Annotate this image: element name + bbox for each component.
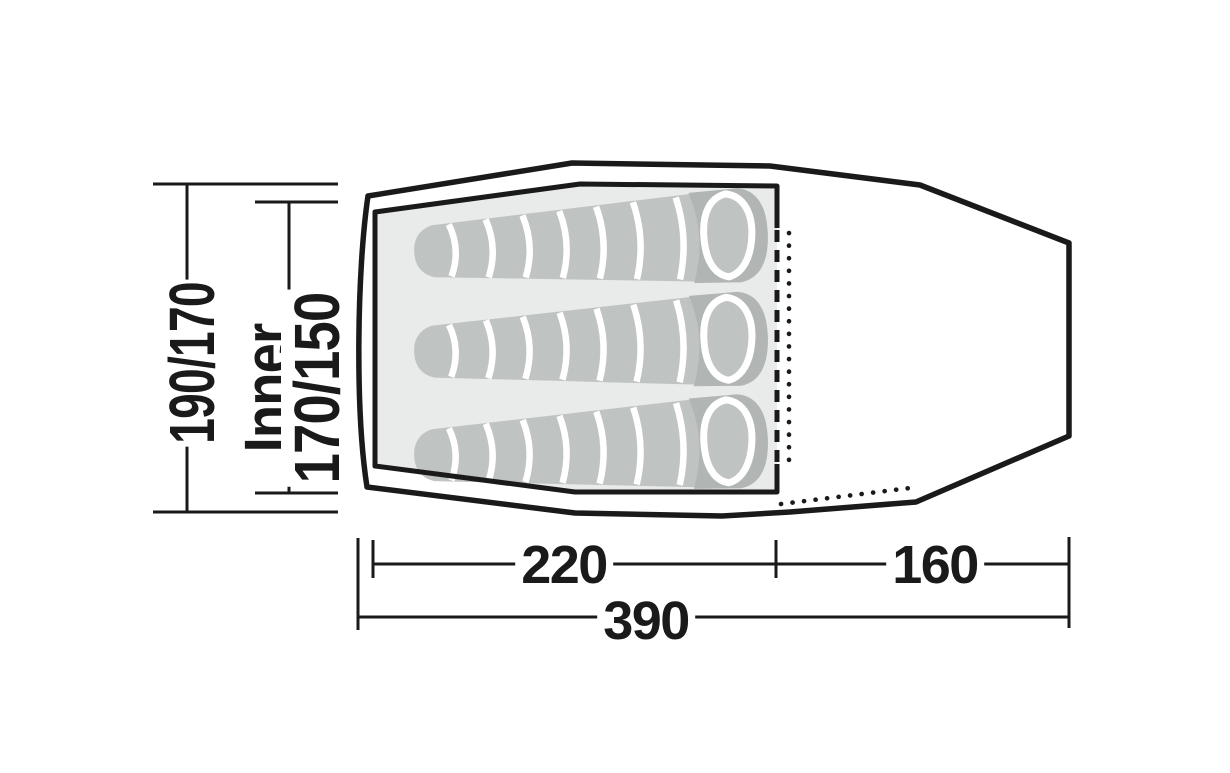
porch-length-label: 160 <box>886 534 984 596</box>
total-length-label: 390 <box>597 590 695 652</box>
inner-height-value: 170/150 <box>281 289 353 486</box>
outer-height-label: 190/170 <box>155 279 229 446</box>
inner-height-label: Inner 170/150 <box>242 289 342 486</box>
inner-length-value: 220 <box>515 535 613 595</box>
tent-dimension-diagram: 190/170 Inner 170/150 220 160 390 <box>0 0 1230 773</box>
porch-length-value: 160 <box>886 535 984 595</box>
total-length-value: 390 <box>597 591 695 651</box>
outer-height-value: 190/170 <box>156 279 228 446</box>
inner-length-label: 220 <box>515 534 613 596</box>
